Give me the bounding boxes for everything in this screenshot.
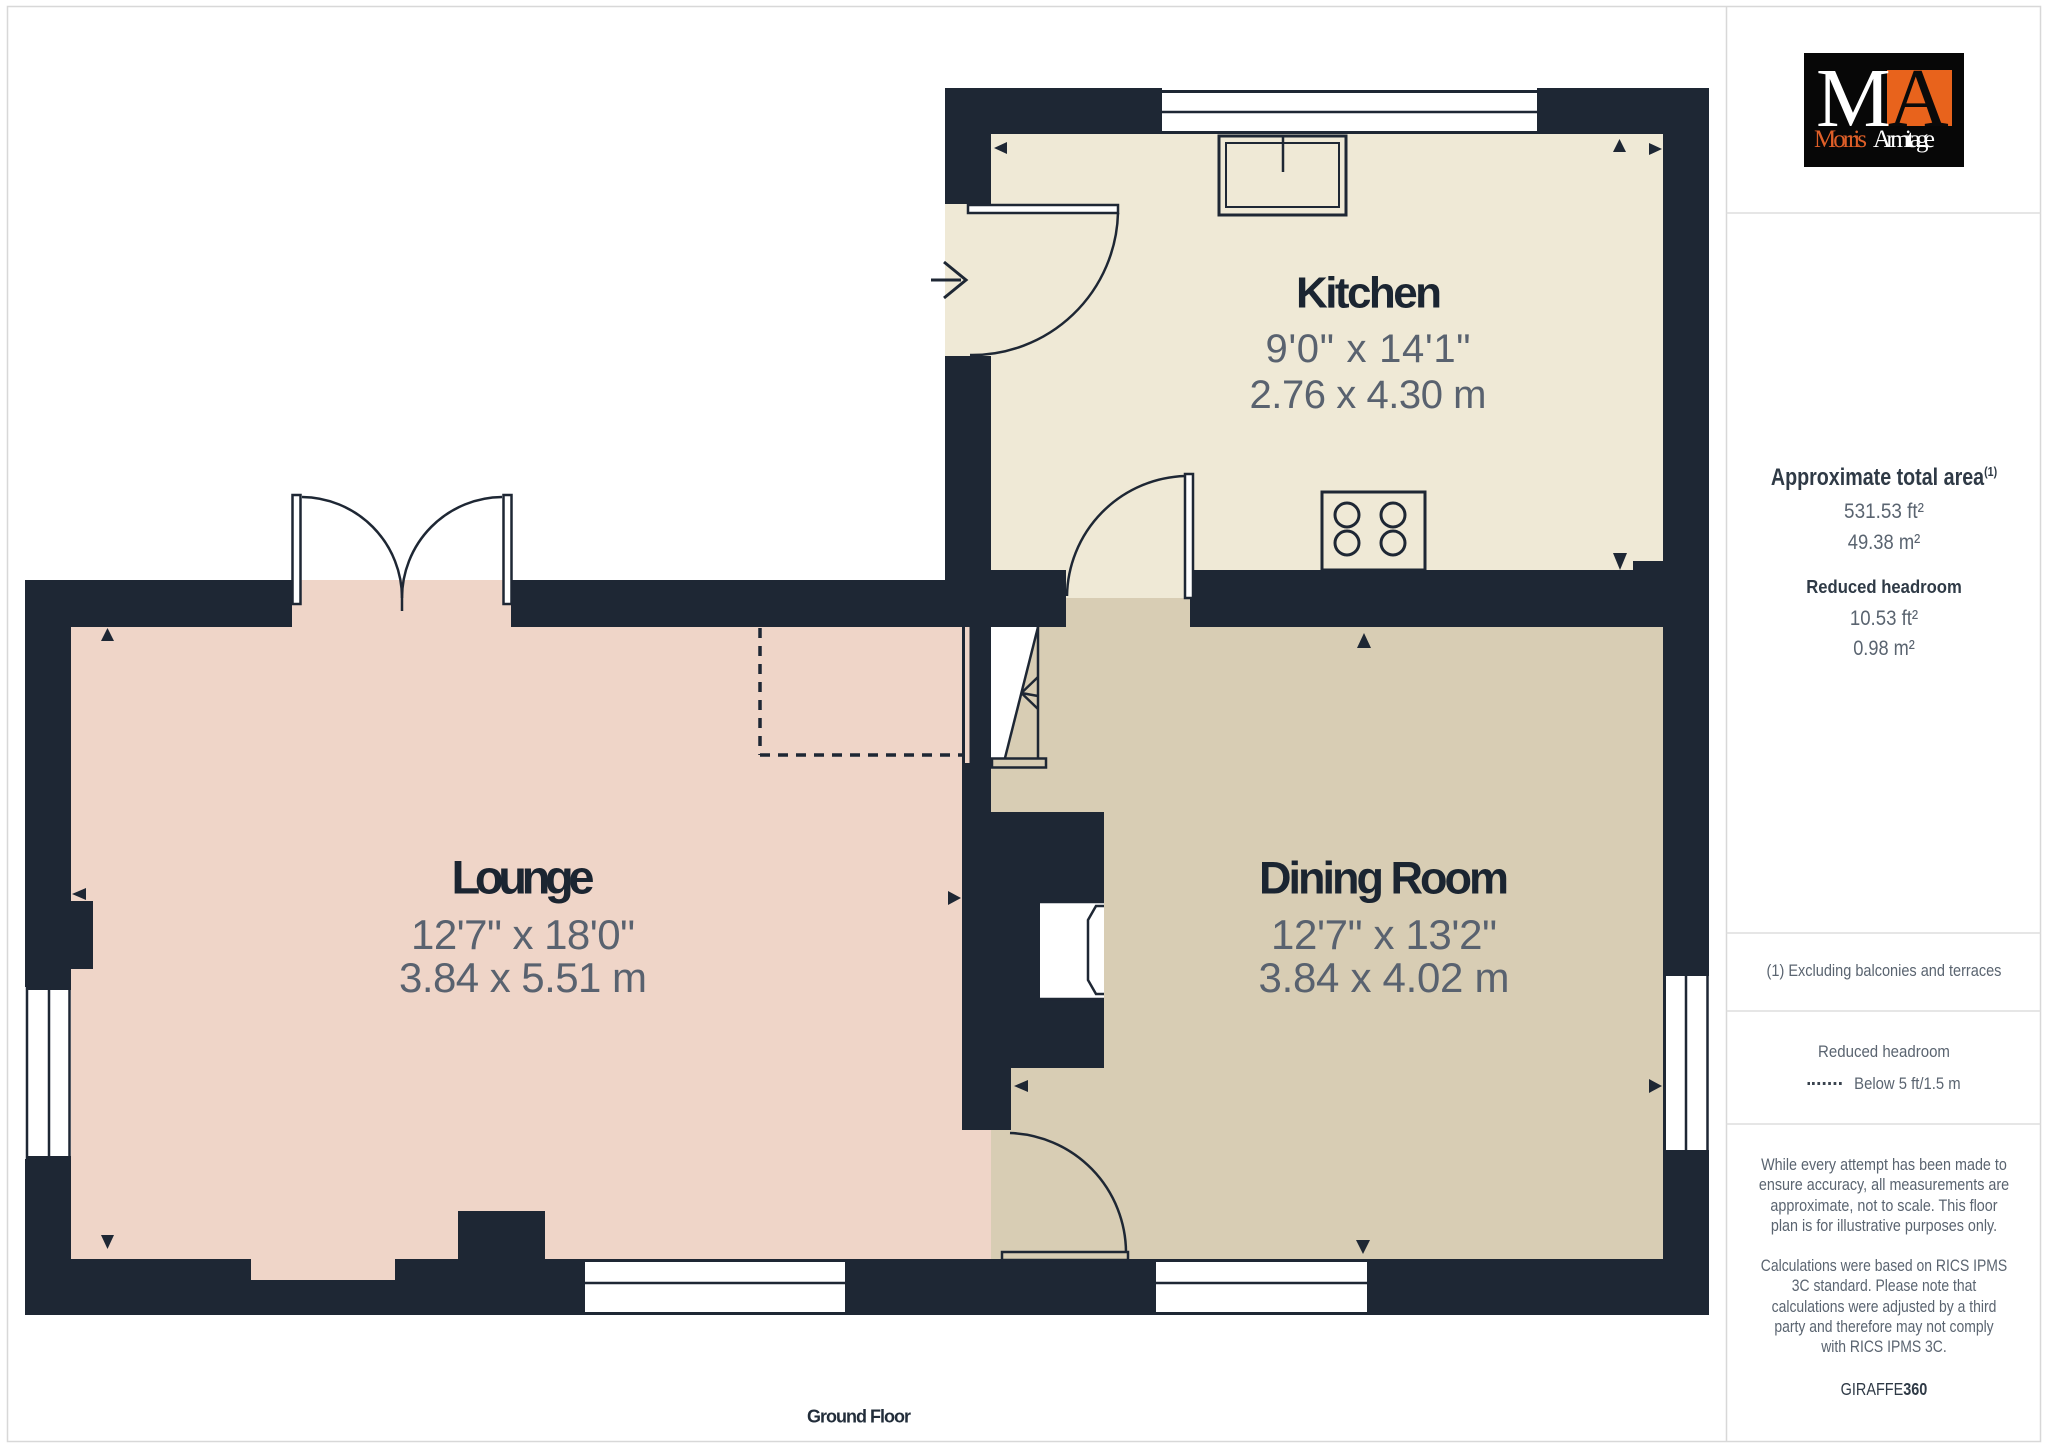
svg-text:2.76 x 4.30 m: 2.76 x 4.30 m [1250,373,1487,417]
svg-text:Ground Floor: Ground Floor [807,1407,911,1427]
svg-text:3.84 x 4.02 m: 3.84 x 4.02 m [1259,954,1510,1001]
svg-text:12'7" x 13'2": 12'7" x 13'2" [1271,911,1497,958]
svg-text:Lounge: Lounge [452,851,595,904]
svg-text:Dining Room: Dining Room [1259,853,1509,904]
svg-text:Morris: Morris [1814,126,1867,153]
svg-text:12'7" x 18'0": 12'7" x 18'0" [411,911,635,958]
svg-text:Kitchen: Kitchen [1296,269,1442,318]
svg-text:Armitage: Armitage [1873,126,1935,153]
svg-text:3.84 x 5.51 m: 3.84 x 5.51 m [399,954,647,1001]
svg-text:9'0" x 14'1": 9'0" x 14'1" [1266,327,1471,371]
